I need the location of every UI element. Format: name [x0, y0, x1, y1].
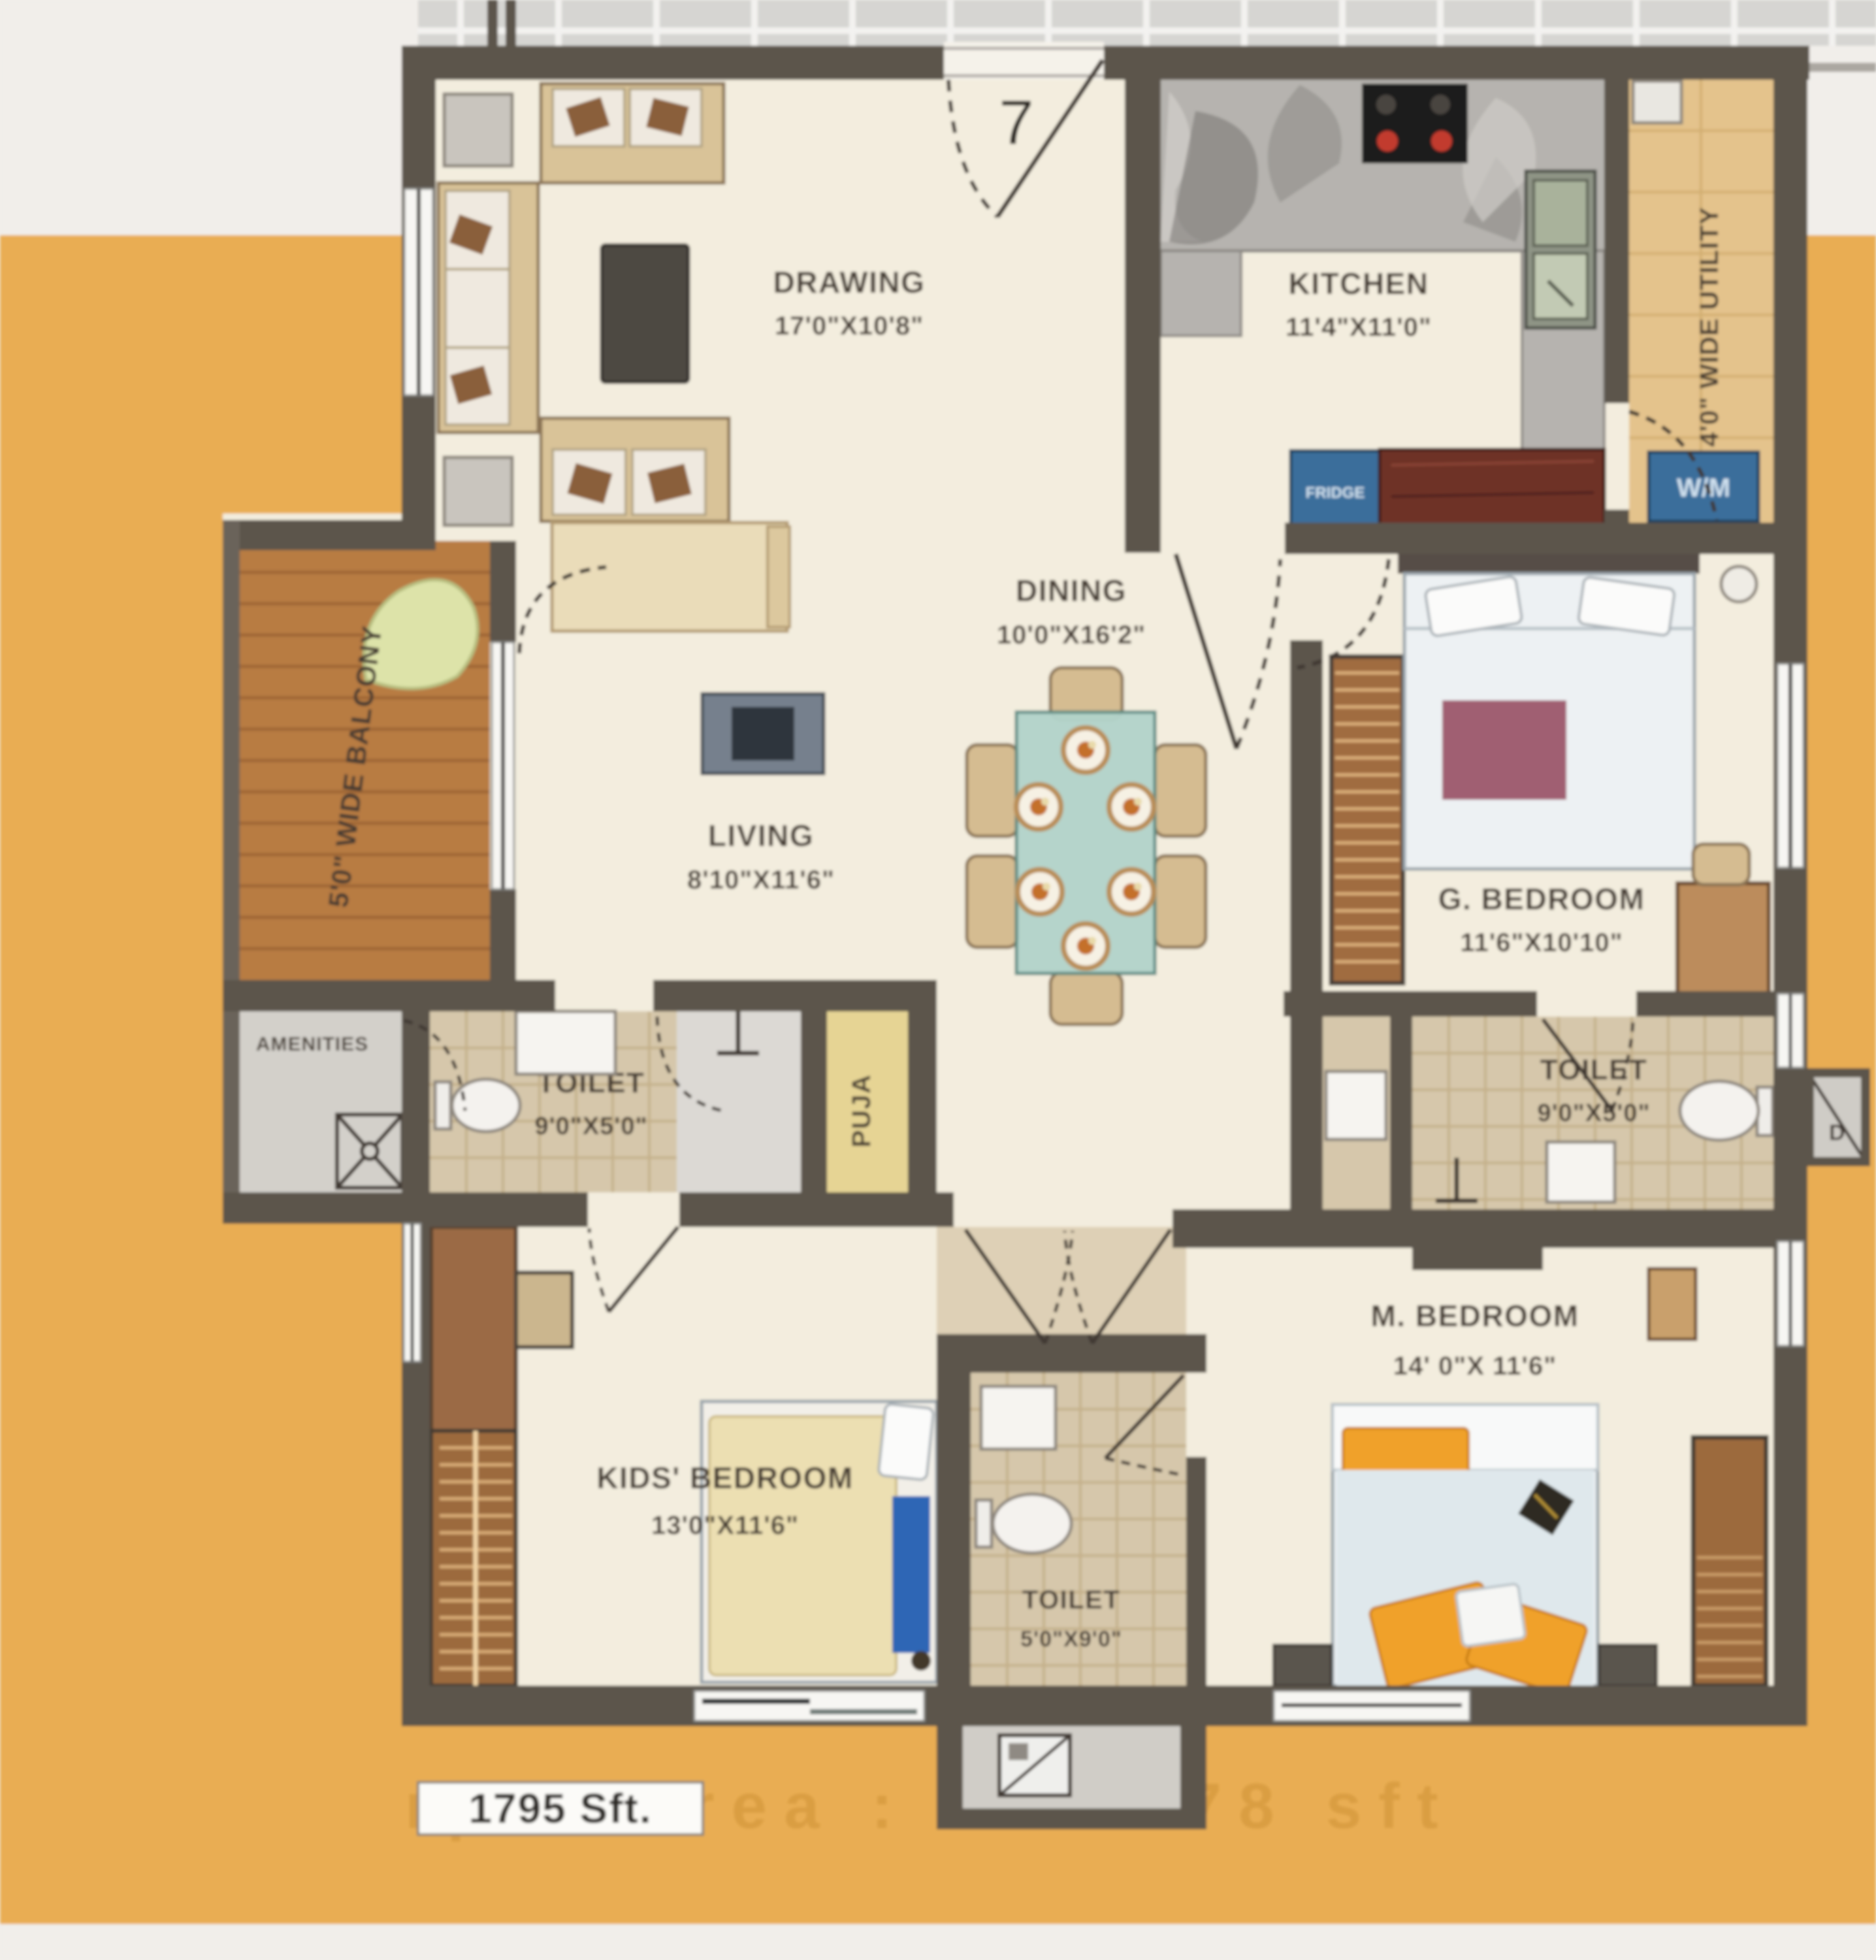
svg-text:AMENITIES: AMENITIES: [256, 1034, 368, 1055]
svg-text:11'4"X11'0": 11'4"X11'0": [1286, 313, 1432, 342]
svg-text:PUJA: PUJA: [847, 1074, 876, 1148]
svg-text:M. BEDROOM: M. BEDROOM: [1370, 1299, 1579, 1333]
svg-text:TOILET: TOILET: [1022, 1586, 1120, 1614]
svg-text:KITCHEN: KITCHEN: [1289, 267, 1429, 301]
svg-text:TOILET: TOILET: [1540, 1054, 1648, 1086]
svg-text:DRAWING: DRAWING: [773, 265, 926, 299]
svg-text:8'10"X11'6": 8'10"X11'6": [687, 866, 835, 894]
svg-text:KIDS' BEDROOM: KIDS' BEDROOM: [596, 1461, 853, 1495]
svg-text:LIVING: LIVING: [708, 819, 814, 853]
svg-text:17'0"X10'8": 17'0"X10'8": [775, 312, 924, 340]
svg-text:W/M: W/M: [1677, 474, 1730, 502]
svg-text:13'0"X11'6": 13'0"X11'6": [651, 1511, 799, 1540]
svg-text:4'0" WIDE UTILITY: 4'0" WIDE UTILITY: [1695, 206, 1724, 447]
svg-text:7: 7: [999, 88, 1033, 157]
svg-text:D: D: [1829, 1120, 1845, 1145]
svg-text:FRIDGE: FRIDGE: [1306, 484, 1365, 502]
svg-text:10'0"X16'2": 10'0"X16'2": [997, 621, 1146, 649]
svg-text:9'0"X5'0": 9'0"X5'0": [1538, 1100, 1651, 1127]
svg-text:11'6"X10'10": 11'6"X10'10": [1460, 928, 1623, 957]
svg-text:9'0"X5'0": 9'0"X5'0": [535, 1113, 648, 1140]
svg-text:DINING: DINING: [1016, 574, 1127, 608]
svg-text:14' 0"X 11'6": 14' 0"X 11'6": [1393, 1352, 1557, 1380]
svg-text:G. BEDROOM: G. BEDROOM: [1438, 882, 1645, 916]
svg-text:1795 Sft.: 1795 Sft.: [468, 1785, 652, 1832]
svg-text:5'0"X9'0": 5'0"X9'0": [1020, 1627, 1122, 1652]
